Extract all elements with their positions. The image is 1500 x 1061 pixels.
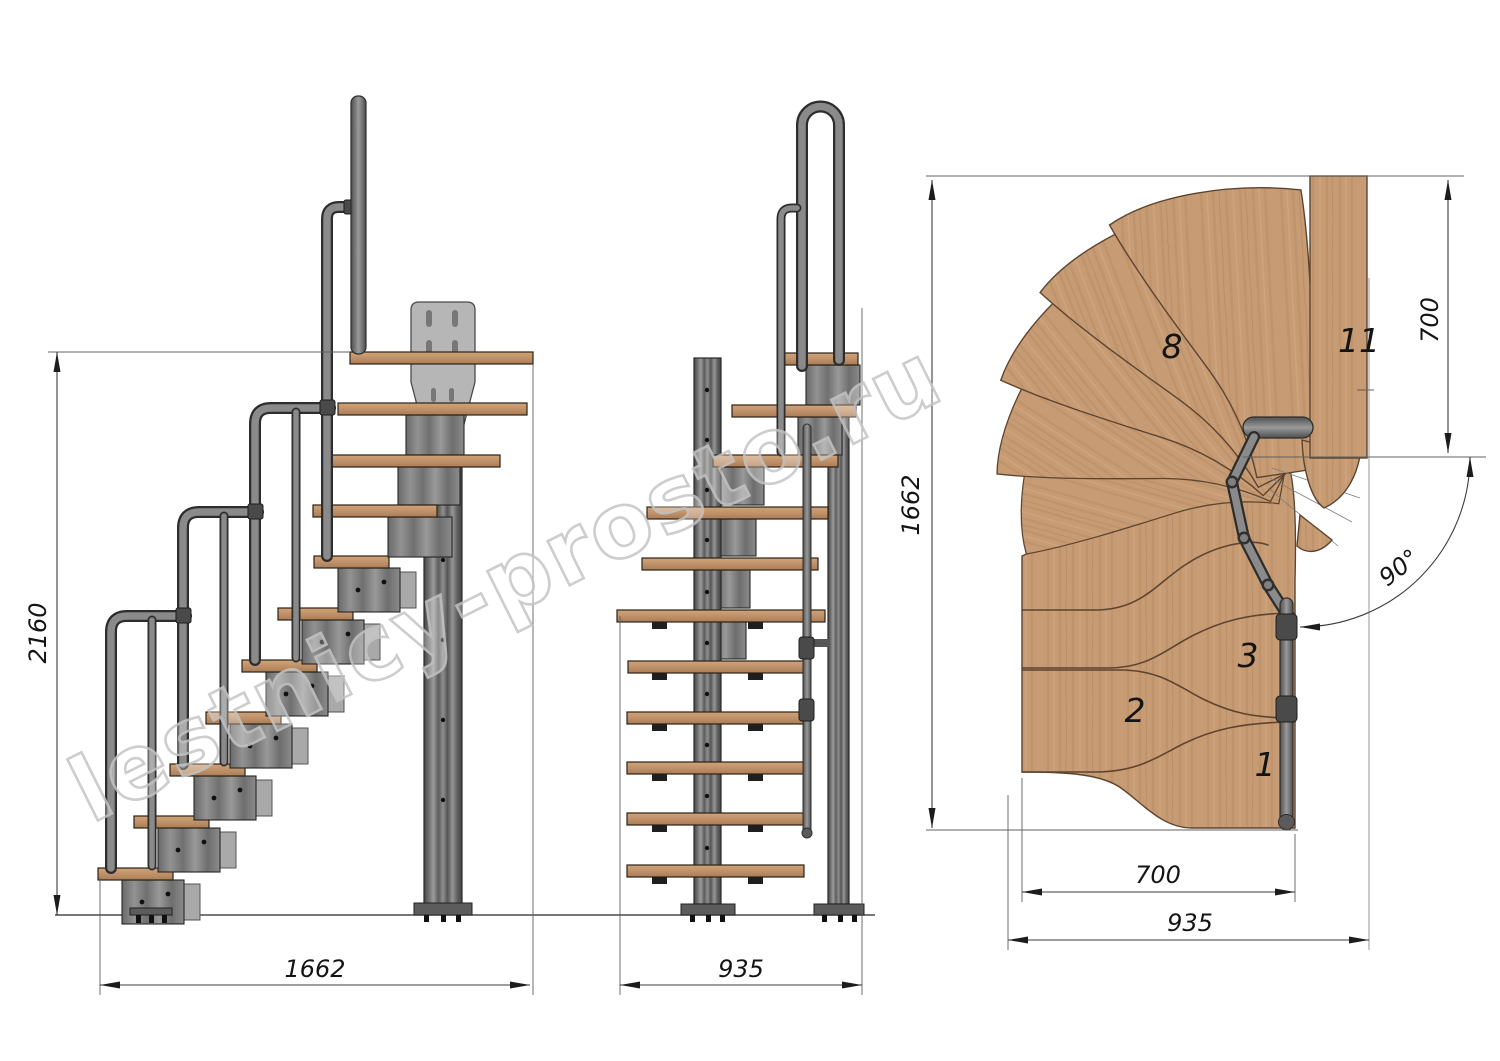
- corner-tread-tip: [1297, 515, 1332, 551]
- plan-view: 1662 700 90° 700 935 1 2 3 8 11: [897, 176, 1486, 950]
- arrow: [54, 352, 61, 372]
- dim-turn-angle-text: 90°: [1374, 544, 1425, 592]
- tread-label-8: 8: [1162, 327, 1183, 366]
- tread: [627, 762, 804, 774]
- arrow: [100, 982, 120, 989]
- arrow: [1349, 937, 1369, 944]
- base-flange: [130, 908, 172, 915]
- dim-landing-depth-text: 700: [1416, 297, 1444, 343]
- tread-label-3: 3: [1238, 636, 1259, 675]
- tread: [627, 813, 804, 825]
- tread: [330, 455, 500, 467]
- dim-flight-width-text: 700: [1135, 861, 1181, 889]
- arrow: [1022, 889, 1042, 896]
- tread: [627, 712, 804, 724]
- dim-plan-length-text: 1662: [897, 474, 925, 535]
- arrow: [1467, 457, 1474, 477]
- arrow: [1275, 889, 1295, 896]
- arrow: [1300, 624, 1320, 631]
- arrow: [510, 982, 530, 989]
- tread: [627, 865, 804, 877]
- watermark-text: lestnicy-prosto.ru: [54, 322, 959, 844]
- landing-plank: [1310, 176, 1367, 458]
- tread: [338, 403, 527, 415]
- tread-label-1: 1: [1255, 745, 1276, 784]
- arrow: [1445, 180, 1452, 200]
- arrow: [54, 895, 61, 915]
- staircase-technical-drawing: 2160 1662: [0, 0, 1500, 1061]
- tread-label-2: 2: [1125, 691, 1146, 730]
- dim-overall-width-text: 935: [1167, 909, 1213, 937]
- arrow: [620, 982, 640, 989]
- arrow: [929, 808, 936, 828]
- arrow: [1445, 433, 1452, 453]
- dim-total-height-text: 2160: [24, 602, 52, 663]
- dim-total-width-text: 935: [718, 955, 764, 983]
- arrow: [929, 180, 936, 200]
- tread: [617, 610, 825, 622]
- landing-tread: [350, 352, 533, 364]
- drawing-svg: 2160 1662: [0, 0, 1500, 1061]
- arrow: [842, 982, 862, 989]
- dim-total-length-text: 1662: [284, 955, 345, 983]
- tread-label-11: 11: [1338, 321, 1380, 360]
- tread: [628, 661, 804, 673]
- tall-handrail-post: [351, 96, 366, 354]
- arrow: [1008, 937, 1028, 944]
